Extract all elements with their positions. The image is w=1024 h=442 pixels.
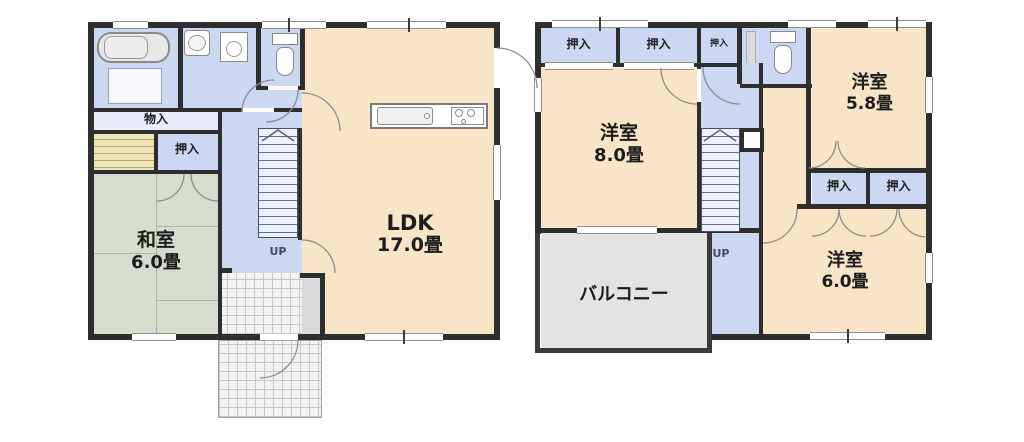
- staircase-1f: [258, 128, 298, 238]
- genkan-entrance: [218, 273, 302, 334]
- closet-mid-1-label: 押入: [812, 180, 866, 193]
- washitsu-name: 和室: [94, 231, 218, 251]
- storage-label: 物入: [94, 113, 218, 126]
- wall: [256, 22, 261, 90]
- toilet-bowl-icon: [276, 47, 294, 76]
- stove-burner: [467, 109, 475, 117]
- room58-size: 5.8畳: [812, 96, 927, 114]
- wall: [88, 22, 94, 340]
- washbasin-bowl: [188, 35, 206, 51]
- window: [577, 226, 657, 234]
- closet-mid-2-label: 押入: [870, 180, 927, 193]
- wall: [298, 128, 302, 240]
- wall: [797, 204, 932, 209]
- tatami-line: [157, 226, 218, 227]
- balcony-label: バルコニー: [552, 286, 696, 305]
- anteroom-2f: [763, 88, 806, 209]
- bathtub-inner: [104, 36, 148, 59]
- window-tick: [288, 18, 290, 32]
- faucet-dot: [424, 113, 430, 119]
- balcony-wall: [535, 230, 540, 353]
- window: [788, 20, 836, 28]
- window: [534, 78, 542, 112]
- toilet-bowl-icon: [774, 45, 792, 74]
- toilet-tank: [272, 33, 298, 45]
- genkan-step: [302, 278, 320, 334]
- entrance-porch: [218, 340, 322, 418]
- door-opening: [242, 108, 274, 112]
- closet-top-1-label: 押入: [541, 38, 616, 51]
- closet-front: [545, 62, 613, 70]
- room6-size: 6.0畳: [763, 274, 927, 292]
- window: [367, 21, 446, 29]
- door-opening: [268, 86, 298, 90]
- ldk-room: [302, 28, 494, 334]
- up-label-2f: UP: [706, 248, 736, 260]
- room8-size: 8.0畳: [541, 147, 697, 166]
- tatami-line: [157, 300, 218, 301]
- window: [493, 145, 501, 200]
- staircase-2f: [701, 128, 740, 232]
- stove-burner: [461, 119, 466, 124]
- front-door-opening: [260, 334, 298, 340]
- up-label-1f: UP: [258, 246, 298, 258]
- balcony-wall: [535, 348, 712, 353]
- wall: [737, 22, 742, 84]
- window-tick: [403, 330, 405, 344]
- washplace: [108, 68, 162, 104]
- room8-name: 洋室: [541, 124, 697, 144]
- closet-top-3-label: 押入: [701, 40, 737, 49]
- window: [132, 333, 176, 341]
- wall: [178, 22, 183, 112]
- wall: [740, 84, 812, 88]
- wall: [218, 108, 222, 340]
- wall: [806, 22, 811, 140]
- window-tick: [896, 17, 898, 31]
- window: [262, 21, 326, 29]
- wall: [697, 63, 701, 69]
- wall: [320, 278, 325, 334]
- room6-name: 洋室: [763, 252, 927, 271]
- oshiire-label: 押入: [156, 143, 218, 156]
- toilet-tank: [770, 31, 796, 43]
- window-tick: [847, 329, 849, 343]
- back-door-arc: [497, 48, 537, 88]
- striped-closet: [94, 132, 154, 170]
- closet-top-2-label: 押入: [620, 38, 697, 51]
- washitsu-size: 6.0畳: [94, 254, 218, 273]
- washing-machine-drum: [226, 41, 242, 57]
- ldk-size: 17.0畳: [330, 236, 490, 256]
- wall: [218, 268, 232, 273]
- wall-stub-box: [740, 128, 764, 152]
- window: [113, 21, 148, 29]
- stove-burner: [455, 109, 463, 117]
- window-tick: [599, 17, 601, 31]
- ldk-name: LDK: [330, 212, 490, 234]
- wall: [88, 170, 222, 174]
- floorplan-canvas: 物入 押入 和室 6.0畳 LDK 17.0畳 UP: [0, 0, 1024, 442]
- window-tick: [408, 18, 410, 32]
- room58-name: 洋室: [812, 74, 927, 93]
- wall: [300, 22, 305, 90]
- back-door-opening: [494, 48, 500, 88]
- closet-front: [624, 62, 694, 70]
